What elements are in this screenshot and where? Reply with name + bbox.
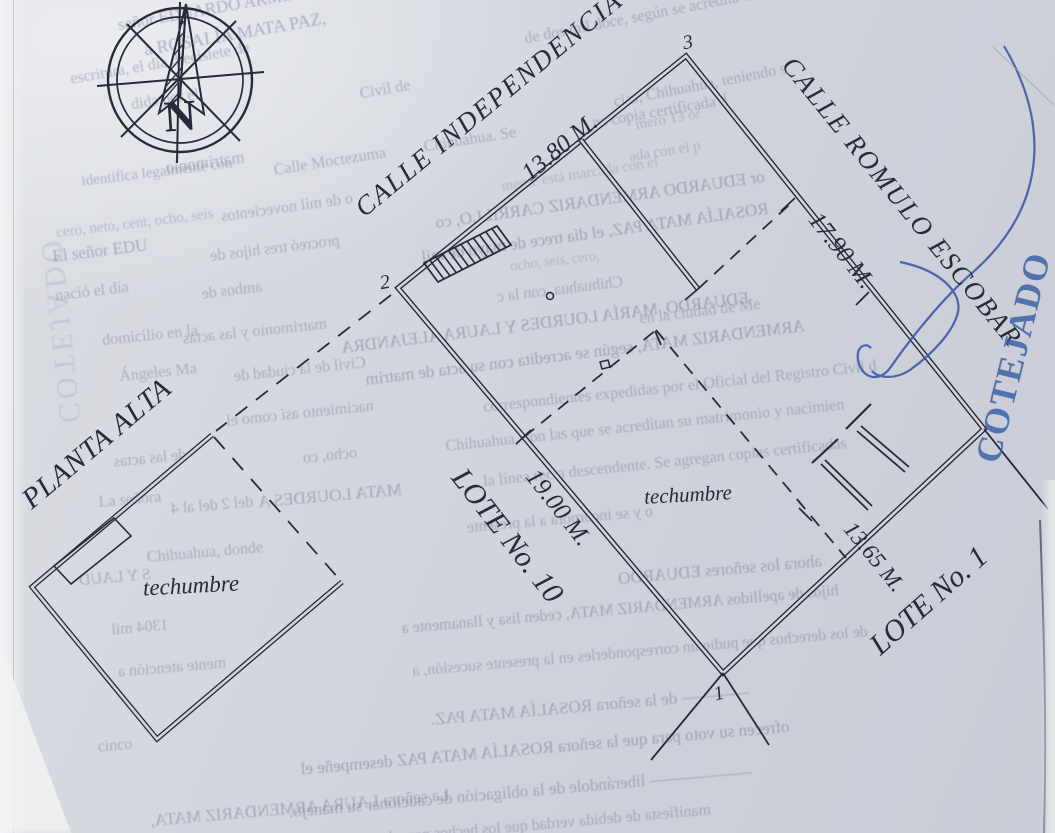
interior-partition-wall <box>581 140 698 300</box>
compass-north-letter: N <box>162 89 197 142</box>
step-stubs <box>812 404 909 510</box>
dashed-partition-lines <box>214 205 846 580</box>
page-right-edge <box>1041 480 1055 833</box>
building-closet-rect <box>54 518 131 584</box>
site-plan-drawing <box>0 0 1055 833</box>
boundary-extension-lines <box>651 429 1048 760</box>
point-marker-square <box>600 360 610 369</box>
dimension-ticks <box>516 198 869 521</box>
scanned-plan-page: señor EDUARDO ARMEde dos mil doce, según… <box>0 0 1055 833</box>
techumbre-building-label: techumbre <box>142 570 239 601</box>
techumbre-lot-label: techumbre <box>643 480 732 510</box>
point-marker-circle <box>547 293 554 300</box>
